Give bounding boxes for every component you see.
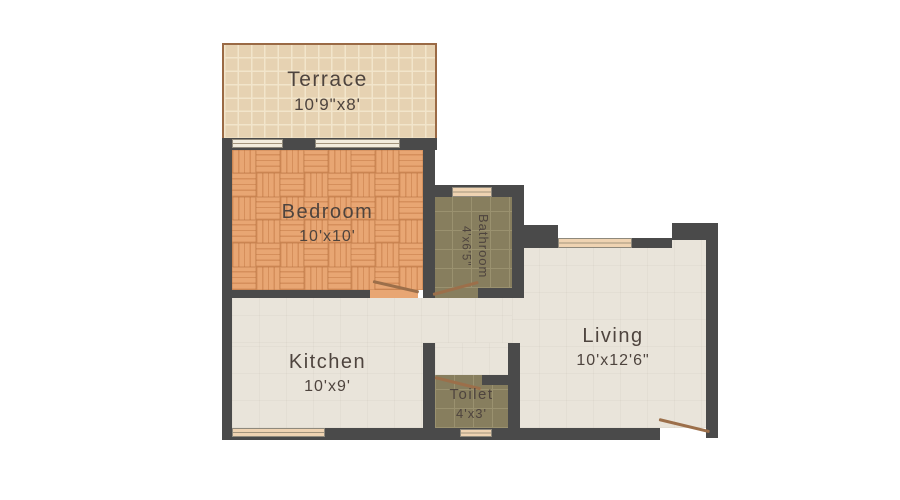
- parquet-tile: [304, 173, 328, 196]
- wall-left-exterior: [222, 138, 232, 440]
- wall-living-top-mid: [632, 238, 672, 248]
- wall-bedroom-bottom: [222, 290, 370, 298]
- wall-bedroom-right: [423, 138, 435, 298]
- wall-living-top-left: [512, 225, 558, 248]
- parquet-tile: [351, 267, 375, 290]
- parquet-tile: [280, 267, 304, 290]
- parquet-tile: [256, 173, 280, 196]
- passage-floor: [232, 298, 520, 343]
- bathroom-label: Bathroom 4'x6'5": [447, 198, 493, 294]
- parquet-tile: [280, 150, 304, 173]
- toilet-dims: 4'x3': [430, 405, 513, 423]
- living-name: Living: [520, 323, 706, 350]
- living-dims: 10'x12'6": [520, 350, 706, 372]
- parquet-tile: [304, 150, 328, 173]
- parquet-tile: [232, 267, 256, 290]
- terrace-dims: 10'9"x8': [222, 94, 433, 117]
- parquet-tile: [232, 150, 256, 173]
- parquet-tile: [328, 267, 352, 290]
- floor-plan: Terrace 10'9"x8' Bedroom 10'x10' Bathroo…: [0, 0, 900, 500]
- parquet-tile: [328, 150, 352, 173]
- terrace-name: Terrace: [222, 66, 433, 94]
- bedroom-window-1: [232, 139, 283, 148]
- parquet-tile: [399, 150, 423, 173]
- parquet-tile: [399, 173, 423, 196]
- kitchen-dims: 10'x9': [232, 376, 423, 398]
- wall-living-right: [706, 223, 718, 438]
- terrace-label: Terrace 10'9"x8': [222, 66, 433, 117]
- toilet-name: Toilet: [430, 385, 513, 405]
- parquet-tile: [375, 173, 399, 196]
- parquet-tile: [256, 267, 280, 290]
- kitchen-label: Kitchen 10'x9': [232, 349, 423, 398]
- kitchen-window: [232, 428, 325, 437]
- parquet-tile: [351, 173, 375, 196]
- toilet-doorway-floor: [435, 343, 508, 375]
- toilet-label: Toilet 4'x3': [430, 385, 513, 423]
- wall-toilet-stub: [482, 375, 508, 385]
- toilet-window: [460, 429, 492, 437]
- living-label: Living 10'x12'6": [520, 323, 706, 372]
- parquet-tile: [280, 173, 304, 196]
- parquet-tile: [351, 150, 375, 173]
- parquet-tile: [328, 173, 352, 196]
- kitchen-name: Kitchen: [232, 349, 423, 376]
- bedroom-dims: 10'x10': [232, 226, 423, 248]
- bedroom-window-2: [315, 139, 400, 148]
- parquet-tile: [375, 150, 399, 173]
- parquet-tile: [304, 267, 328, 290]
- bathroom-name: Bathroom: [474, 198, 494, 294]
- parquet-tile: [256, 150, 280, 173]
- living-window: [558, 238, 632, 248]
- bathroom-window: [452, 187, 492, 197]
- bathroom-dims: 4'x6'5": [456, 198, 473, 294]
- bedroom-label: Bedroom 10'x10': [232, 199, 423, 248]
- bedroom-name: Bedroom: [232, 199, 423, 226]
- parquet-tile: [232, 173, 256, 196]
